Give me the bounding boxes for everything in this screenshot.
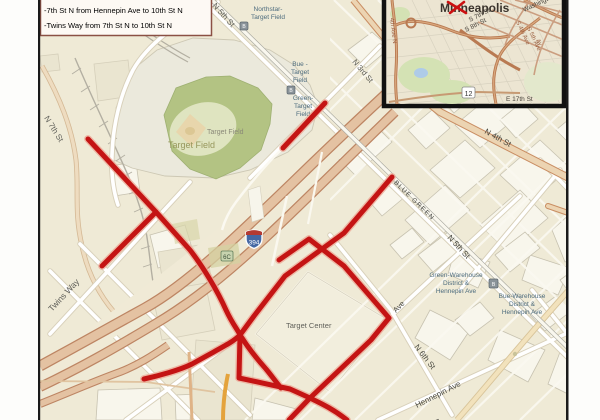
svg-text:Field: Field — [293, 77, 307, 84]
svg-text:Northstar-: Northstar- — [254, 6, 283, 13]
svg-text:Green-: Green- — [293, 95, 313, 102]
svg-text:-7th St N from Hennepin Ave to: -7th St N from Hennepin Ave to 10th St N — [44, 6, 183, 15]
svg-text:Target: Target — [291, 69, 309, 76]
svg-text:394: 394 — [249, 240, 260, 247]
svg-text:Target Field: Target Field — [168, 140, 215, 150]
svg-text:Target Center: Target Center — [286, 321, 332, 330]
svg-text:Hennepin Ave: Hennepin Ave — [436, 288, 477, 295]
svg-text:District &: District & — [443, 280, 470, 287]
svg-text:12: 12 — [465, 91, 473, 98]
svg-text:Bue -: Bue - — [292, 61, 308, 68]
svg-text:Target: Target — [294, 103, 312, 110]
svg-text:Hennepin Ave: Hennepin Ave — [502, 309, 543, 316]
svg-text:6C: 6C — [223, 255, 231, 261]
svg-text:District &: District & — [509, 301, 536, 308]
svg-text:Target Field: Target Field — [207, 129, 244, 136]
svg-text:Bue-Warehouse: Bue-Warehouse — [499, 293, 546, 300]
svg-text:-Twins Way from 7th St N to 10: -Twins Way from 7th St N to 10th St N — [44, 21, 172, 30]
svg-text:E 17th St: E 17th St — [506, 96, 533, 103]
svg-text:Green-Warehouse: Green-Warehouse — [429, 272, 483, 279]
svg-text:Target Field: Target Field — [251, 14, 285, 21]
